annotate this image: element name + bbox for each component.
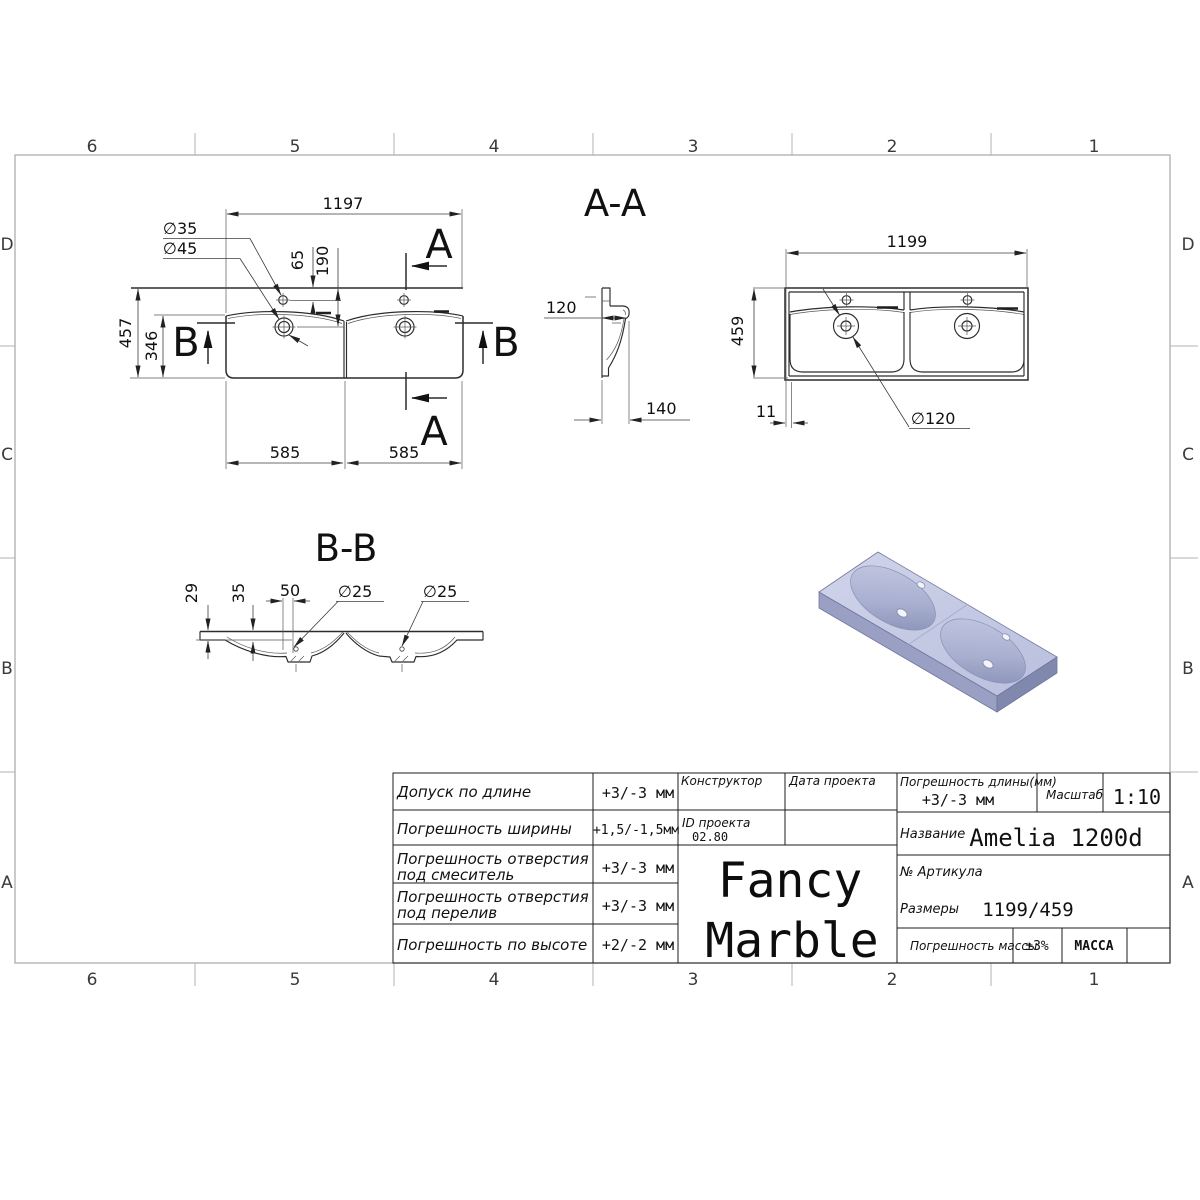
dim-plan-height: 457: [116, 318, 135, 349]
dim-aa-depth: 140: [646, 399, 677, 418]
drawing-canvas: 6 5 4 3 2 1 6 5 4 3 2 1 D C B A D C B A: [0, 0, 1200, 1200]
top-view: 1199 459 11 ∅120: [728, 232, 1028, 429]
tolerance-row-label: Погрешность по высоте: [397, 936, 587, 954]
mass-tolerance-value: ±3%: [1025, 939, 1049, 954]
dim-bb-boss: 50: [280, 581, 300, 600]
tolerance-row-label: Допуск по длине: [396, 783, 531, 801]
designer-label: Конструктор: [681, 774, 763, 788]
grid-bottom-1: 1: [1089, 970, 1100, 990]
brand-line-1: Fancy: [718, 853, 863, 909]
dim-top-depth: 459: [728, 316, 747, 347]
dim-top-drain-dia: ∅120: [911, 409, 955, 428]
scale-value: 1:10: [1113, 785, 1161, 809]
grid-top-3: 3: [688, 137, 699, 157]
grid-left-d: D: [0, 235, 13, 255]
top-view-drain-right: [955, 314, 980, 339]
bb-drain-hole-left: [294, 647, 298, 651]
name-value: Amelia 1200d: [969, 824, 1142, 852]
dim-plan-width: 1197: [323, 194, 364, 213]
dim-basin-right: 585: [389, 443, 420, 462]
top-view-faucet-right: [961, 293, 975, 307]
sheet-frame: 6 5 4 3 2 1 6 5 4 3 2 1 D C B A D C B A: [0, 133, 1198, 990]
dim-bb-edge: 29: [182, 583, 201, 603]
bb-drain-hole-right: [400, 647, 404, 651]
grid-top-6: 6: [87, 137, 98, 157]
section-mark-a-top: A: [406, 222, 453, 290]
mass-label: МАССА: [1074, 939, 1113, 954]
section-mark-b-right: B: [455, 320, 520, 366]
svg-text:A: A: [425, 222, 453, 268]
svg-text:A: A: [420, 409, 448, 455]
section-aa-view: A-A 120 140: [544, 182, 690, 424]
project-id-label: ID проекта: [682, 816, 750, 830]
grid-left-c: C: [1, 445, 13, 465]
dim-drain-offset: 190: [313, 246, 332, 277]
grid-bottom-2: 2: [887, 970, 898, 990]
length-tolerance-value: +3/-3 мм: [922, 791, 994, 809]
grid-labels-right: D C B A: [1181, 235, 1194, 893]
grid-top-5: 5: [290, 137, 301, 157]
name-label: Название: [900, 827, 965, 842]
iso-render: [819, 552, 1057, 712]
dim-bb-hole-left: ∅25: [338, 582, 372, 601]
drain-hole-symbol-left: [273, 316, 296, 339]
dim-aa-height: 120: [546, 298, 577, 317]
drain-hole-symbol-right: [394, 316, 417, 339]
tolerance-row-label: под перелив: [397, 904, 497, 922]
grid-right-a: A: [1182, 873, 1194, 893]
grid-bottom-4: 4: [489, 970, 500, 990]
brand-logo: Fancy Marble: [705, 853, 878, 969]
grid-labels-left: D C B A: [0, 235, 13, 893]
tolerance-row-value: +1,5/-1,5мм: [593, 823, 679, 838]
grid-left-b: B: [1, 659, 13, 679]
brand-line-2: Marble: [705, 913, 878, 969]
tolerance-row-value: +3/-3 мм: [602, 784, 674, 802]
project-id-value: 02.80: [692, 830, 728, 844]
grid-bottom-6: 6: [87, 970, 98, 990]
project-date-label: Дата проекта: [788, 774, 876, 788]
dim-bb-mid: 35: [229, 583, 248, 603]
svg-text:B: B: [492, 320, 519, 366]
dim-faucet-dia: ∅35: [163, 219, 197, 238]
dim-basin-left: 585: [270, 443, 301, 462]
size-label: Размеры: [900, 902, 959, 917]
section-bb-view: B-B 29 35 50 ∅25 ∅25: [182, 527, 483, 672]
top-view-faucet-left: [840, 293, 854, 307]
dim-plan-basin-depth: 346: [142, 331, 161, 362]
dim-drain-dia: ∅45: [163, 239, 197, 258]
scale-label: Масштаб: [1046, 788, 1104, 802]
grid-right-b: B: [1182, 659, 1194, 679]
grid-right-d: D: [1181, 235, 1194, 255]
section-bb-title: B-B: [315, 527, 378, 570]
grid-right-c: C: [1182, 445, 1194, 465]
dim-top-width: 1199: [887, 232, 928, 251]
dim-bb-hole-right: ∅25: [423, 582, 457, 601]
drawing-sheet: 6 5 4 3 2 1 6 5 4 3 2 1 D C B A D C B A: [0, 0, 1200, 1200]
grid-top-2: 2: [887, 137, 898, 157]
dim-top-rim: 11: [756, 402, 776, 421]
grid-top-1: 1: [1089, 137, 1100, 157]
tolerance-row-value: +2/-2 мм: [602, 936, 674, 954]
top-view-drain-left: [834, 314, 859, 339]
grid-bottom-5: 5: [290, 970, 301, 990]
tolerance-table: Допуск по длине +3/-3 мм Погрешность шир…: [396, 783, 679, 954]
article-label: № Артикула: [899, 865, 983, 880]
size-value: 1199/459: [982, 899, 1074, 921]
tolerance-row-label: под смеситель: [397, 866, 514, 884]
grid-bottom-3: 3: [688, 970, 699, 990]
section-aa-title: A-A: [584, 182, 646, 225]
svg-text:B: B: [172, 320, 199, 366]
tolerance-row-label: Погрешность ширины: [397, 820, 572, 838]
grid-top-4: 4: [489, 137, 500, 157]
mass-tolerance-label: Погрешность массы: [910, 939, 1037, 953]
plan-view: 1197 457 346 65 190 ∅35 ∅45 585 585: [116, 194, 520, 469]
tolerance-row-value: +3/-3 мм: [602, 859, 674, 877]
grid-left-a: A: [1, 873, 13, 893]
dim-faucet-offset: 65: [288, 250, 307, 270]
title-block: Допуск по длине +3/-3 мм Погрешность шир…: [393, 773, 1170, 969]
tolerance-row-value: +3/-3 мм: [602, 897, 674, 915]
faucet-hole-symbol-right: [397, 293, 411, 307]
faucet-hole-symbol-left: [276, 293, 290, 307]
length-tolerance-label: Погрешность длины(мм): [900, 775, 1057, 789]
